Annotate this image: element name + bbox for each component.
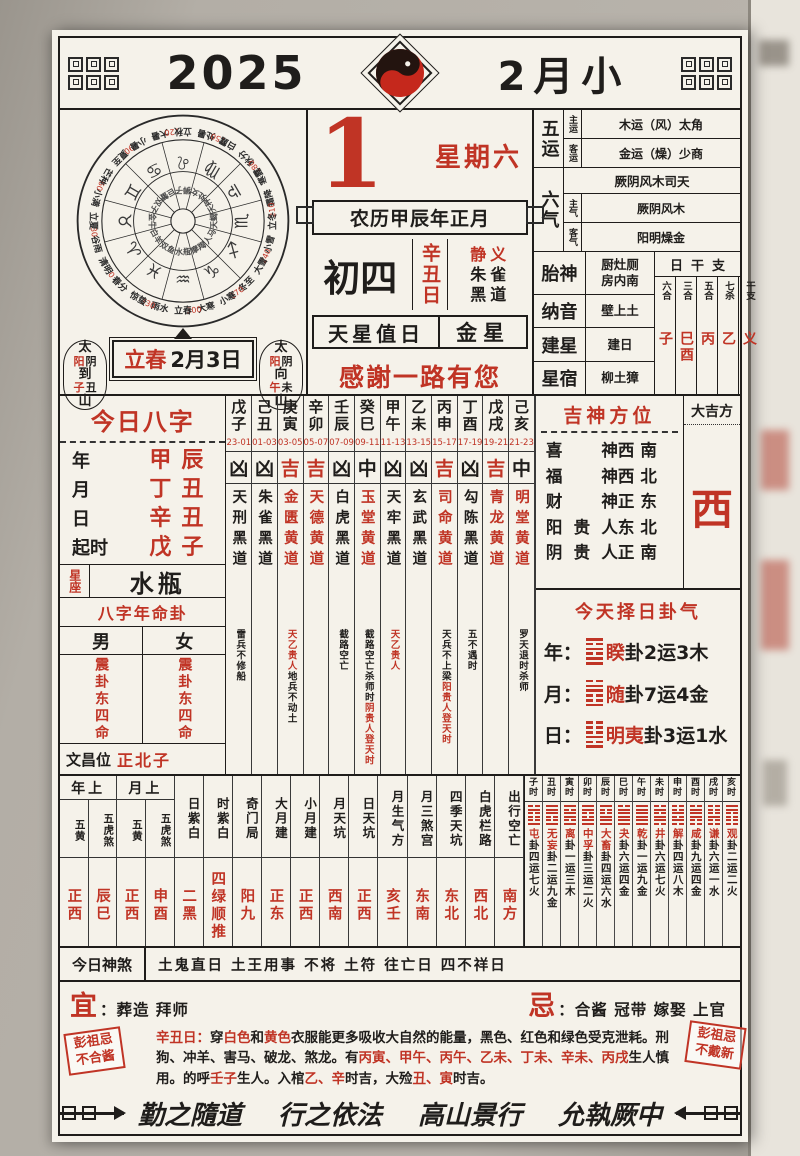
- hexagram-icon: [586, 679, 603, 708]
- hour-ganzhi: 戊 戌: [488, 396, 503, 438]
- direction-group: 月上五黄正西五虎煞申酉: [117, 776, 174, 946]
- taishen-row: 胎神 厨灶厕 房内南: [534, 252, 654, 295]
- lucky-god-name: 阴贵人: [546, 540, 618, 566]
- lucky-god-direction: 正东: [618, 489, 663, 515]
- day-god-1: 朱雀: [470, 265, 510, 285]
- suitable-text: ：葬造 拜师: [100, 998, 189, 1020]
- solar-term-立春: 立春: [174, 304, 192, 316]
- direction-value: 二黑: [178, 858, 199, 946]
- hexagram-icon: [636, 805, 648, 826]
- hour-ganzhi: 甲 午: [386, 396, 401, 438]
- hour-time-range: 05-07: [304, 438, 329, 451]
- direction-value: 正西: [63, 858, 84, 946]
- day-advice-paragraph: 辛丑日：穿白色和黄色衣服能更多吸收大自然的能量，黑色、红色和绿色受克泄耗。刑狗、…: [156, 1028, 732, 1089]
- direction-group-header: 月上: [117, 776, 173, 800]
- zodiac-glyph-双鱼: ♓: [141, 260, 165, 285]
- solar-term-立秋: 立秋: [174, 126, 192, 138]
- lucky-god-direction: 西南: [618, 438, 663, 464]
- hour-time-range: 03-05: [278, 438, 303, 451]
- hexagram-icon: [690, 805, 702, 826]
- hexagram-icon: [726, 805, 738, 826]
- bazi-value: 戊子: [149, 533, 213, 562]
- lucky-god-name: 阳贵人: [546, 515, 618, 541]
- ganzhi-table-title: 日干支: [655, 252, 740, 277]
- bazi-row: 起时戊子: [72, 533, 213, 562]
- direction-column: 大月建正东: [262, 776, 291, 946]
- hour-god: 玉堂黄道: [357, 489, 378, 627]
- direction-column: 日紫白二黑: [175, 776, 204, 946]
- hour-ganzhi: 丁 酉: [463, 396, 478, 438]
- hour-gua-name: 乾: [636, 828, 648, 840]
- banner-term: 立春: [124, 348, 166, 372]
- hour-gua-header: 申 时: [669, 776, 686, 802]
- hour-gua-text: 屯卦四运七火: [528, 828, 539, 946]
- direction-column: 五黄正西: [117, 800, 145, 946]
- hour-time-range: 23-01: [226, 438, 251, 451]
- constellation-label: 星座: [60, 565, 90, 597]
- hour-gua-column-未时: 未 时井卦六运七火: [651, 776, 669, 946]
- hour-ganzhi: 乙 未: [411, 396, 426, 438]
- day-number: 1: [318, 110, 384, 200]
- hour-note-part: 五不遇时: [466, 629, 477, 671]
- hour-god: 玄武黑道: [408, 489, 429, 627]
- bazi-label: 起时: [72, 537, 108, 561]
- direction-header: 五黄: [117, 800, 145, 858]
- hour-god: 明堂黄道: [511, 489, 532, 627]
- direction-column: 五黄正西: [60, 800, 88, 946]
- hour-note-part: 天兵不上梁: [440, 629, 451, 682]
- direction-column: 五虎煞申酉: [145, 800, 174, 946]
- hour-column-丁酉: 丁 酉17-19凶勾陈黑道五不遇时: [458, 396, 484, 774]
- relation-header: 五合: [700, 277, 714, 331]
- hour-column-壬辰: 壬 辰07-09凶白虎黑道截路空亡: [329, 396, 355, 774]
- constellation-value: 水瓶: [90, 565, 225, 597]
- avoid-text: ：合酱 冠带 嫁娶 上官: [558, 998, 726, 1020]
- great-luck-value: 西: [691, 425, 733, 588]
- advice-segment: 乙、辛: [305, 1071, 346, 1087]
- hour-gua-detail: 卦一运九金: [636, 839, 648, 897]
- hour-god: 勾陈黑道: [460, 489, 481, 627]
- hour-column-甲午: 甲 午11-13凶天牢黑道天乙贵人: [381, 396, 407, 774]
- zodiac-glyph-人马: ♐: [222, 239, 247, 263]
- hour-god: 青龙黄道: [485, 489, 506, 627]
- sun-moon-left-char: 到: [78, 368, 91, 383]
- sun-moon-left-pair: 阳阴: [74, 356, 97, 368]
- bazi-value: 辛丑: [149, 504, 213, 533]
- page-header: 2025 2月小: [60, 38, 740, 110]
- lucky-god-direction: 西北: [618, 464, 663, 490]
- hour-column-戊戌: 戊 戌19-21吉青龙黄道: [483, 396, 509, 774]
- jianxing-value: 建日: [586, 328, 654, 360]
- life-gua-row: 震卦东四命 震卦东四命: [60, 655, 225, 744]
- hour-gua-text: 谦卦六运一水: [708, 828, 719, 946]
- hexagram-icon: [600, 805, 612, 826]
- bazi-value: 甲辰: [149, 446, 213, 475]
- jianxing-row: 建星 建日: [534, 328, 654, 361]
- suitable-avoid-row: 宜 ：葬造 拜师 忌 ：合酱 冠带 嫁娶 上官: [60, 982, 740, 1024]
- hour-ganzhi: 戊 子: [231, 396, 246, 438]
- motto-phrase: 高山景行: [418, 1095, 522, 1132]
- hour-gua-detail: 卦二运九金: [546, 851, 558, 909]
- great-luck-direction: 大吉方 西: [684, 396, 740, 588]
- advice-segment: 丙寅、甲午、丙午、乙未、丁未、辛未、丙戌: [359, 1050, 629, 1066]
- hour-note-part: 截路空亡杀师时: [363, 629, 374, 703]
- bazi-row: 月丁丑: [72, 475, 213, 504]
- hour-gua-name: 大畜: [600, 828, 612, 851]
- hour-note-part: 阴贵人登天时: [363, 703, 374, 766]
- hour-gua-name: 井: [654, 828, 666, 840]
- hour-gua-column-辰时: 辰 时大畜卦四运六水: [597, 776, 615, 946]
- hour-gua-header: 丑 时: [543, 776, 560, 802]
- hour-column-丙申: 丙 申15-17吉司命黄道天兵不上梁阳贵人登天时: [432, 396, 458, 774]
- hour-gua-text: 咸卦九运四金: [690, 828, 701, 946]
- hour-time-range: 09-11: [355, 438, 380, 451]
- direction-group: 年上五黄正西五虎煞辰巳: [60, 776, 117, 946]
- meander-ornament-right: [673, 57, 740, 90]
- direction-value: 正东: [265, 858, 286, 946]
- star-duty-label: 天星值日: [314, 317, 440, 347]
- hour-gua-detail: 卦六运一水: [708, 839, 720, 897]
- taiji-swirl-icon: [374, 47, 426, 99]
- advice-segment: 时吉。: [453, 1071, 494, 1087]
- relation-header: 三合: [679, 277, 693, 331]
- star-duty-row: 天星值日 金星: [312, 315, 528, 349]
- advice-segment: 辛丑日：: [156, 1030, 210, 1046]
- advice-segment: 丑、寅: [413, 1071, 454, 1087]
- nayin-row: 纳音 壁上土: [534, 295, 654, 328]
- hour-gua-header: 寅 时: [561, 776, 578, 802]
- hour-luck: 凶: [381, 451, 406, 484]
- hour-note: 截路空亡: [336, 629, 347, 774]
- hour-gua-column-巳时: 巳 时夬卦六运四金: [615, 776, 633, 946]
- hour-god: 司命黄道: [434, 489, 455, 627]
- directions-table: 年上五黄正西五虎煞辰巳月上五黄正西五虎煞申酉日紫白二黑时紫白四绿顺推奇门局阳九大…: [60, 776, 524, 946]
- lucky-gods-box: 吉神方位 喜神西南福神西北财神正东阳贵人东北阴贵人正南: [536, 396, 684, 588]
- advice-footer: 彭祖忌 不合酱 彭祖忌 不戴新 辛丑日：穿白色和黄色衣服能更多吸收大自然的能量，…: [60, 1024, 740, 1092]
- meander-ornament-left: [60, 57, 127, 90]
- lucky-god-row: 喜神西南: [546, 438, 673, 464]
- arrow-ornament-left: [58, 1104, 124, 1122]
- hour-ganzhi: 己 亥: [514, 396, 529, 438]
- bazi-value: 丁丑: [149, 475, 213, 504]
- ganzhi-relation-column: 七杀乙: [717, 277, 738, 394]
- hour-gua-detail: 卦一运三木: [564, 839, 576, 897]
- zodiac-glyph-天秤: ♎: [222, 179, 247, 203]
- hour-luck: 吉: [304, 451, 329, 484]
- zodiac-name-狮子: 狮子: [175, 185, 192, 195]
- great-luck-label: 大吉方: [684, 396, 740, 425]
- hour-time-range: 07-09: [329, 438, 354, 451]
- direction-value: 正西: [353, 858, 374, 946]
- gua-qi-title: 今天择日卦气: [544, 598, 732, 624]
- hour-luck-section: 今日八字 年甲辰月丁丑日辛丑起时戊子 星座 水瓶 八字年命卦 男 女 震卦东四命…: [60, 396, 740, 776]
- solar-term-zodiac-wheel: 春分0清明谷雨30立夏小满60芒种夏至90小暑大暑120立秋处暑150白露秋分1…: [72, 110, 294, 332]
- hour-ganzhi: 己 丑: [257, 396, 272, 438]
- hour-gua-detail: 卦六运七火: [654, 839, 666, 897]
- hour-time-range: 17-19: [458, 438, 483, 451]
- zodiac-glyph-双子: ♊: [119, 179, 144, 203]
- relation-value: 巳酉: [676, 331, 696, 394]
- solar-term-立冬: 立冬: [266, 212, 278, 230]
- hour-gua-name: 夬: [618, 828, 630, 840]
- zodiac-glyph-天蝎: ♏: [232, 213, 252, 229]
- hour-gua-header: 辰 时: [597, 776, 614, 802]
- direction-column: 时紫白四绿顺推: [204, 776, 233, 946]
- relation-header: 干支: [742, 277, 756, 331]
- taishen-label: 胎神: [534, 252, 586, 294]
- hour-gua-header: 午 时: [633, 776, 650, 802]
- hour-time-range: 11-13: [381, 438, 406, 451]
- hour-gua-column-子时: 子 时屯卦四运七火: [525, 776, 543, 946]
- day-spirits-row: 今日神煞 土鬼直日 土王用事 不将 土符 往亡日 四不祥日: [60, 948, 740, 982]
- hour-gua-text: 离卦一运三木: [564, 828, 575, 946]
- hour-luck: 中: [509, 451, 534, 484]
- day-spirits-text: 土鬼直日 土王用事 不将 土符 往亡日 四不祥日: [146, 948, 740, 980]
- hour-luck: 吉: [432, 451, 457, 484]
- hour-luck: 吉: [278, 451, 303, 484]
- suitable-label: 宜: [70, 984, 98, 1023]
- relation-header: 七杀: [721, 277, 735, 331]
- motto-phrase: 允執厥中: [558, 1095, 662, 1132]
- zodiac-glyph-处女: ♍: [201, 157, 225, 182]
- hour-gua-header: 戌 时: [705, 776, 722, 802]
- keqi-value: 阳明燥金: [582, 223, 740, 251]
- bazi-panel: 今日八字 年甲辰月丁丑日辛丑起时戊子 星座 水瓶 八字年命卦 男 女 震卦东四命…: [60, 396, 226, 774]
- hour-note-part: 地兵不动土: [286, 671, 297, 724]
- greeting-text: 感謝一路有您: [308, 358, 532, 394]
- relation-value: 子: [655, 331, 675, 394]
- advice-segment: 黄色: [264, 1030, 291, 1046]
- direction-header: 五黄: [60, 800, 88, 858]
- direction-header: 月生气方: [378, 776, 406, 858]
- constellation-row: 星座 水瓶: [60, 564, 225, 598]
- hour-gua-header: 卯 时: [579, 776, 596, 802]
- lucky-gods-title: 吉神方位: [541, 396, 678, 433]
- ganzhi-relation-column: 三合巳酉: [675, 277, 696, 394]
- directions-table-section: 年上五黄正西五虎煞辰巳月上五黄正西五虎煞申酉日紫白二黑时紫白四绿顺推奇门局阳九大…: [60, 776, 740, 948]
- five-movements-column: 五运 主运 木运（风）太角 客运 金运（燥）少商 六气 厥阴风木司天: [534, 110, 740, 394]
- xingxiu-value: 柳土獐: [586, 362, 654, 394]
- day-spirits-label: 今日神煞: [60, 948, 146, 980]
- hour-gua-text: 乾卦一运九金: [636, 828, 647, 946]
- ganzhi-relation-column: 五合丙: [696, 277, 717, 394]
- direction-header: 时紫白: [204, 776, 232, 858]
- zodiac-wheel-column: 春分0清明谷雨30立夏小满60芒种夏至90小暑大暑120立秋处暑150白露秋分1…: [60, 110, 308, 394]
- direction-value: 东北: [440, 858, 461, 946]
- direction-column: 小月建正西: [291, 776, 320, 946]
- direction-column: 月三煞宫东南: [408, 776, 437, 946]
- hour-god: 天德黄道: [305, 489, 326, 627]
- wuyun-row: 五运 主运 木运（风）太角 客运 金运（燥）少商: [534, 110, 740, 168]
- hexagram-icon: [654, 805, 666, 826]
- gua-qi-period: 日：: [544, 721, 582, 748]
- hour-gua-detail: 卦四运六水: [600, 851, 612, 909]
- xingxiu-label: 星宿: [534, 362, 586, 394]
- hour-gua-column-卯时: 卯 时中孚卦三运二火: [579, 776, 597, 946]
- taishen-value-1: 厨灶厕: [601, 257, 639, 273]
- bazi-row: 日辛丑: [72, 504, 213, 533]
- hour-time-range: 13-15: [406, 438, 431, 451]
- month-title: 2月小: [454, 44, 673, 102]
- bazi-label: 年: [72, 450, 90, 474]
- advice-segment: 白色: [224, 1030, 251, 1046]
- zhuyun-label: 主运: [564, 110, 582, 138]
- almanac-page: 2025 2月小 春分0清明谷雨30立夏小满60芒种夏至90小暑大暑120立秋处…: [52, 30, 748, 1142]
- lucky-god-row: 福神西北: [546, 464, 673, 490]
- day-quality: 静义: [470, 245, 510, 265]
- hour-gua-column-寅时: 寅 时离卦一运三木: [561, 776, 579, 946]
- hour-gua-column-亥时: 亥 时观卦二运二火: [723, 776, 740, 946]
- pengzu-taboo-seal-left: 彭祖忌 不合酱: [63, 1026, 125, 1075]
- zodiac-glyph-巨蟹: ♋: [141, 157, 165, 182]
- hexagram-icon: [564, 805, 576, 826]
- hour-note: 天乙贵人地兵不动土: [285, 629, 296, 774]
- wenchang-row: 文昌位 正北子: [60, 744, 225, 774]
- direction-header: 日紫白: [175, 776, 203, 858]
- page-frame: 2025 2月小 春分0清明谷雨30立夏小满60芒种夏至90小暑大暑120立秋处…: [58, 36, 742, 1136]
- life-gua-title: 八字年命卦: [60, 598, 225, 627]
- gua-qi-period: 年：: [544, 638, 582, 665]
- day-ganzhi: 辛丑日: [412, 239, 448, 310]
- direction-column: 月生气方亥壬: [378, 776, 407, 946]
- hour-god: 白虎黑道: [331, 489, 352, 627]
- female-label: 女: [142, 627, 225, 654]
- liuqi-row: 六气 厥阴风木司天 主气 厥阴风木 客气 阳明燥金: [534, 168, 740, 252]
- solar-term-banner: 立春2月3日: [112, 340, 253, 378]
- hour-note-part: 天乙贵人: [388, 629, 399, 671]
- hour-note-part: 天乙贵人: [286, 629, 297, 671]
- female-gua: 震卦东四命: [142, 655, 225, 743]
- hour-gua-header: 子 时: [525, 776, 542, 802]
- hexagram-icon: [582, 805, 594, 826]
- lunar-year-month: 农历甲辰年正月: [312, 200, 528, 235]
- wheel-pointer-icon: [174, 328, 192, 339]
- hour-god: 天刑黑道: [228, 489, 249, 627]
- sun-moon-right-pair: 午未: [270, 382, 293, 394]
- direction-value: 东南: [411, 858, 432, 946]
- gua-qi-period: 月：: [544, 680, 582, 707]
- hour-gua-detail: 卦二运二火: [726, 839, 738, 897]
- zodiac-glyph-白羊: ♈: [119, 239, 144, 263]
- hour-note: 天兵不上梁阳贵人登天时: [439, 629, 450, 774]
- hour-gua-text: 井卦六运七火: [654, 828, 665, 946]
- ganzhi-relation-column: 六合子: [655, 277, 675, 394]
- hour-gua-column-申时: 申 时解卦四运八木: [669, 776, 687, 946]
- hour-ganzhi: 癸 巳: [360, 396, 375, 438]
- direction-header: 五虎煞: [146, 800, 174, 858]
- hour-gua-name: 屯: [528, 828, 540, 840]
- hour-god: 金匮黄道: [280, 489, 301, 627]
- motto-phrase: 勤之隨道: [138, 1095, 242, 1132]
- direction-value: 南方: [498, 858, 519, 946]
- hour-note-part: 截路空亡: [337, 629, 348, 671]
- jianxing-label: 建星: [534, 328, 586, 360]
- lucky-directions-panel: 吉神方位 喜神西南福神西北财神正东阳贵人东北阴贵人正南 大吉方 西 今天择日卦气…: [535, 396, 740, 774]
- lucky-god-name: 福神: [546, 464, 618, 490]
- sitian-value: 厥阴风木司天: [564, 168, 740, 194]
- hour-gua-name: 咸: [690, 828, 702, 840]
- sun-moon-right-char: 太: [274, 341, 287, 356]
- hexagram-icon: [586, 637, 603, 666]
- hour-note: 截路空亡杀师时阴贵人登天时: [362, 629, 373, 774]
- bazi-title: 今日八字: [60, 396, 225, 443]
- hour-ganzhi: 壬 辰: [334, 396, 349, 438]
- hexagram-icon: [546, 805, 558, 826]
- hour-luck: 吉: [483, 451, 508, 484]
- keyun-label: 客运: [564, 139, 582, 167]
- hour-god: 朱雀黑道: [254, 489, 275, 627]
- hour-gua-detail: 卦九运四金: [690, 839, 702, 897]
- sun-moon-left-char: 太: [78, 341, 91, 356]
- hour-gua-column-午时: 午 时乾卦一运九金: [633, 776, 651, 946]
- adjacent-page-edge: [748, 0, 800, 1156]
- hour-ganzhi: 丙 申: [437, 396, 452, 438]
- hour-gua-column-丑时: 丑 时无妄卦二运九金: [543, 776, 561, 946]
- hour-column-辛卯: 辛 卯05-07吉天德黄道: [304, 396, 330, 774]
- calligraphy-motto: 勤之隨道行之依法高山景行允執厥中: [60, 1092, 740, 1134]
- year-title: 2025: [127, 46, 346, 100]
- hour-note-part: 阳贵人登天时: [440, 682, 451, 745]
- relation-header: 六合: [658, 277, 672, 331]
- hour-gua-header: 未 时: [651, 776, 668, 802]
- direction-header: 四季天坑: [437, 776, 465, 858]
- hexagram-icon: [618, 805, 630, 826]
- hour-luck: 凶: [226, 451, 251, 484]
- keqi-label: 客气: [564, 223, 582, 251]
- avoid-label: 忌: [528, 984, 556, 1023]
- hour-gua-text: 无妄卦二运九金: [546, 828, 557, 946]
- hour-gua-text: 大畜卦四运六水: [600, 828, 611, 946]
- motto-phrase: 行之依法: [278, 1095, 382, 1132]
- xingxiu-row: 星宿 柳土獐: [534, 362, 654, 394]
- relation-value: 义: [739, 331, 759, 394]
- star-duty-value: 金星: [440, 317, 526, 347]
- gua-name: 睽: [606, 638, 625, 665]
- hour-time-range: 01-03: [252, 438, 277, 451]
- pengzu-taboo-seal-right: 彭祖忌 不戴新: [684, 1020, 746, 1069]
- lucky-god-name: 喜神: [546, 438, 618, 464]
- advice-segment: 和: [251, 1030, 265, 1046]
- hour-gua-name: 中孚: [582, 828, 594, 851]
- zhuqi-label: 主气: [564, 194, 582, 222]
- zodiac-name-水瓶: 水瓶: [175, 247, 191, 257]
- hour-luck: 凶: [329, 451, 354, 484]
- direction-value: 西南: [324, 858, 345, 946]
- direction-value: 辰巳: [92, 858, 113, 946]
- hour-time-range: 19-21: [483, 438, 508, 451]
- bazi-row: 年甲辰: [72, 446, 213, 475]
- direction-value: 亥壬: [382, 858, 403, 946]
- date-column: 1 星期六 农历甲辰年正月 初四 辛丑日 静义 朱雀 黑道 天星值日 金星 感謝…: [308, 110, 534, 394]
- hour-gua-name: 观: [726, 828, 738, 840]
- nayin-value: 壁上土: [586, 295, 654, 327]
- hour-luck: 凶: [458, 451, 483, 484]
- banner-date: 2月3日: [170, 348, 241, 372]
- lucky-god-row: 财神正东: [546, 489, 673, 515]
- advice-segment: 生人。入棺: [237, 1071, 305, 1087]
- hour-time-range: 21-23: [509, 438, 534, 451]
- gua-name: 明夷: [606, 721, 644, 748]
- direction-header: 日天坑: [349, 776, 377, 858]
- hour-column-乙未: 乙 未13-15凶玄武黑道: [406, 396, 432, 774]
- weekday-label: 星期六: [435, 137, 522, 174]
- hour-note: 罗天退时杀师: [516, 629, 527, 774]
- direction-value: 正西: [295, 858, 316, 946]
- top-section: 春分0清明谷雨30立夏小满60芒种夏至90小暑大暑120立秋处暑150白露秋分1…: [60, 110, 740, 396]
- direction-header: 五虎煞: [89, 800, 117, 858]
- zodiac-glyph-金牛: ♉: [114, 213, 134, 229]
- direction-header: 白虎栏路: [466, 776, 494, 858]
